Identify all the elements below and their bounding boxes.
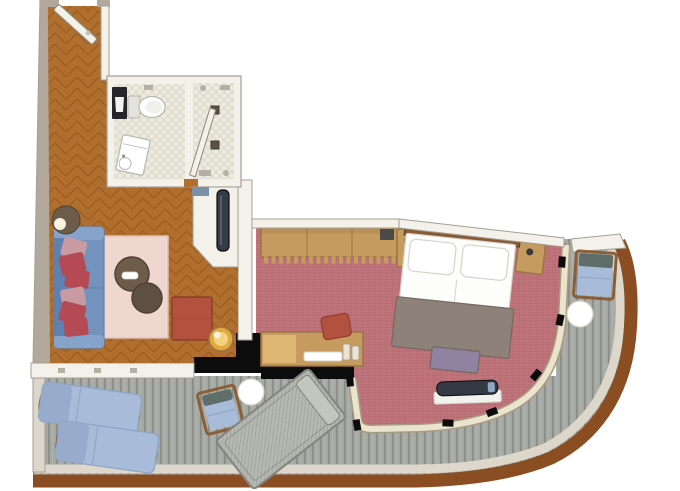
corridor-right-wall — [101, 6, 109, 80]
wardrobe-safe — [380, 229, 394, 240]
entry-door-handle — [86, 31, 91, 36]
desk-chair — [320, 313, 352, 341]
closet-shelf — [192, 187, 209, 196]
coffee-table-small — [132, 283, 162, 313]
double-bed — [391, 224, 521, 359]
lamp-side-table — [209, 327, 233, 351]
living-bottom-wall — [31, 363, 194, 378]
desk-tray — [304, 352, 342, 361]
round-side-table-bottom — [238, 379, 264, 405]
floorplan-canvas — [0, 0, 680, 491]
round-side-table-right — [567, 301, 593, 327]
toilet — [128, 96, 165, 118]
floorplan-svg — [0, 0, 680, 491]
deck-armchair-right — [573, 251, 616, 300]
desk-bottle — [352, 346, 359, 360]
sofa — [54, 227, 104, 348]
tv-console — [434, 380, 502, 404]
closet-tall-cabinet — [217, 190, 229, 251]
pillow-left — [407, 239, 456, 276]
bathroom-cabinet — [112, 87, 127, 119]
bathroom-block — [107, 76, 241, 187]
pillow-right — [460, 244, 509, 281]
table-remote — [122, 272, 138, 279]
desk-bottle — [343, 344, 350, 360]
bathroom-door-opening — [184, 179, 198, 187]
foot-bench — [430, 347, 480, 374]
floor-lamp — [52, 206, 80, 234]
wardrobe — [261, 226, 399, 260]
